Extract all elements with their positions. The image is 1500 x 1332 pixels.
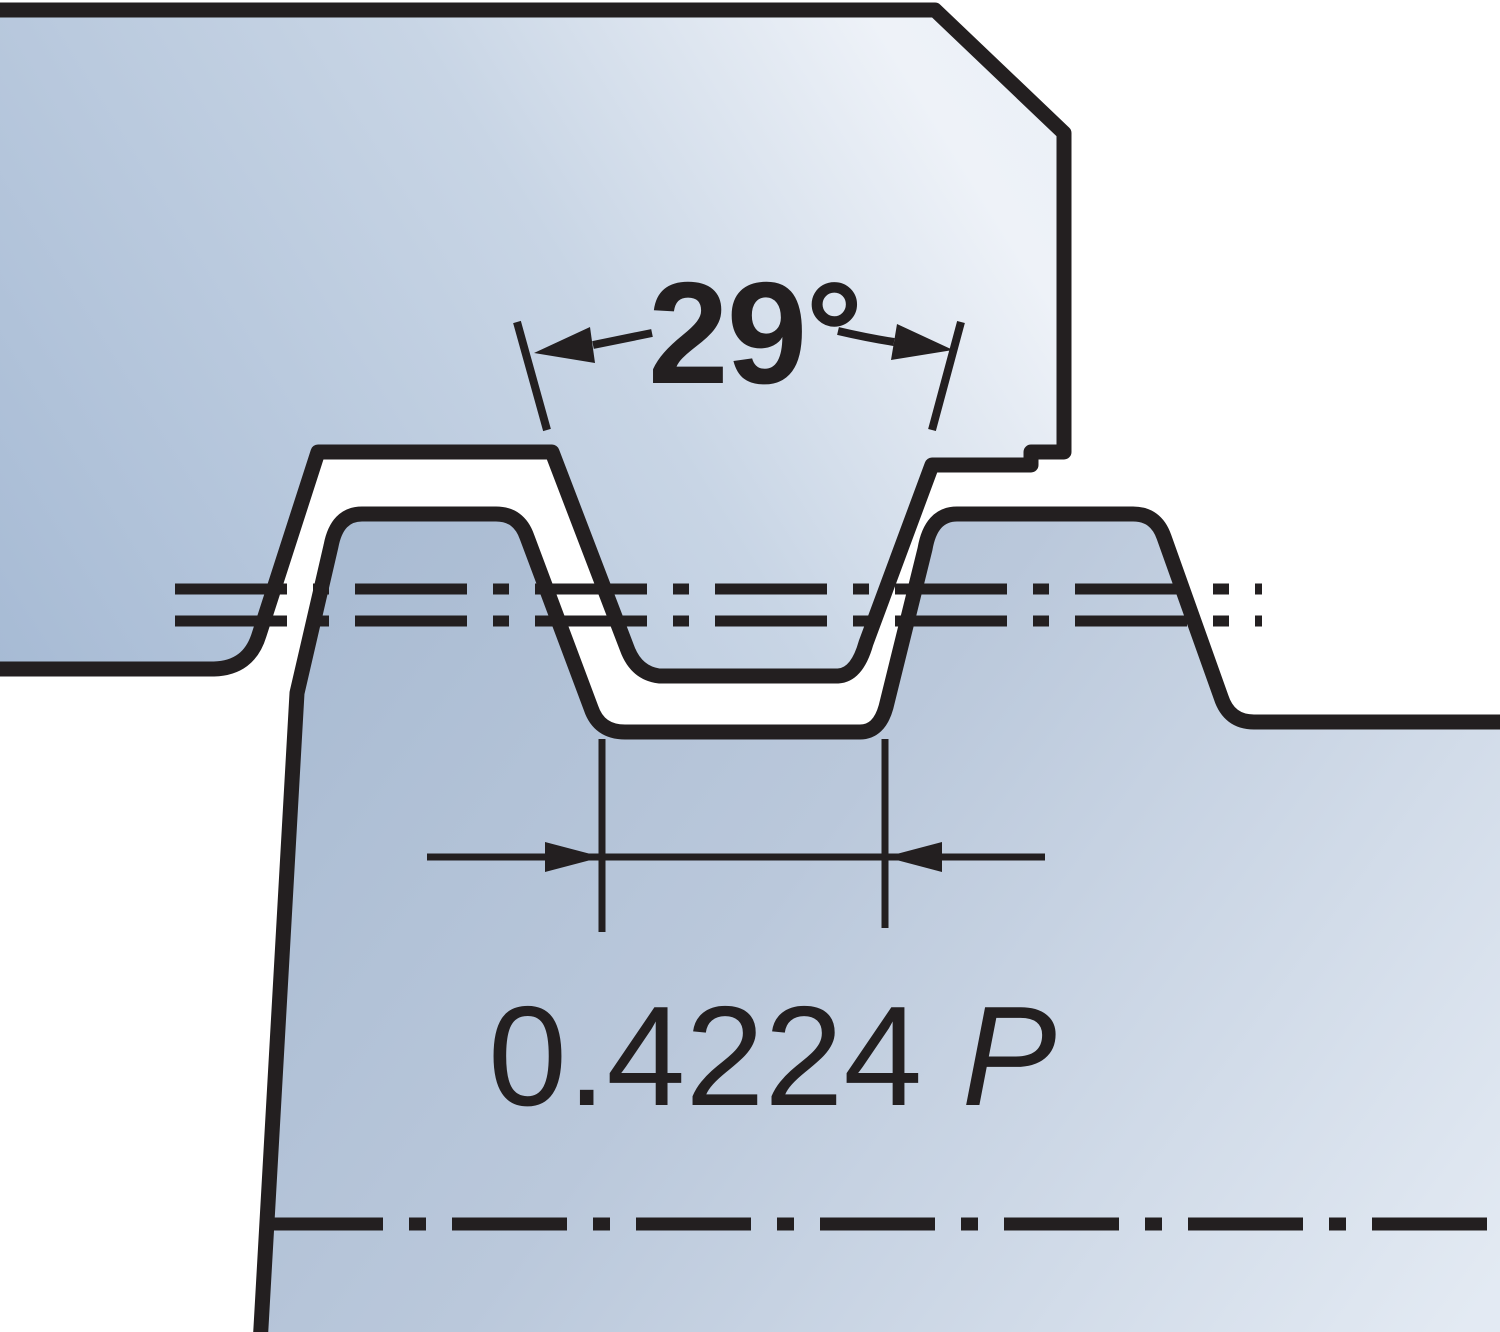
- thread-profile-diagram: 29° 0.4224 P: [0, 0, 1500, 1332]
- thread-profile-canvas: 29° 0.4224 P: [0, 0, 1500, 1332]
- width-label-value: 0.4224: [488, 977, 922, 1136]
- workpiece-thread-profile: [260, 514, 1500, 1332]
- width-label: 0.4224 P: [488, 977, 1057, 1136]
- width-label-unit: P: [962, 977, 1057, 1136]
- angle-label: 29°: [648, 252, 861, 414]
- width-label-space: [922, 977, 961, 1136]
